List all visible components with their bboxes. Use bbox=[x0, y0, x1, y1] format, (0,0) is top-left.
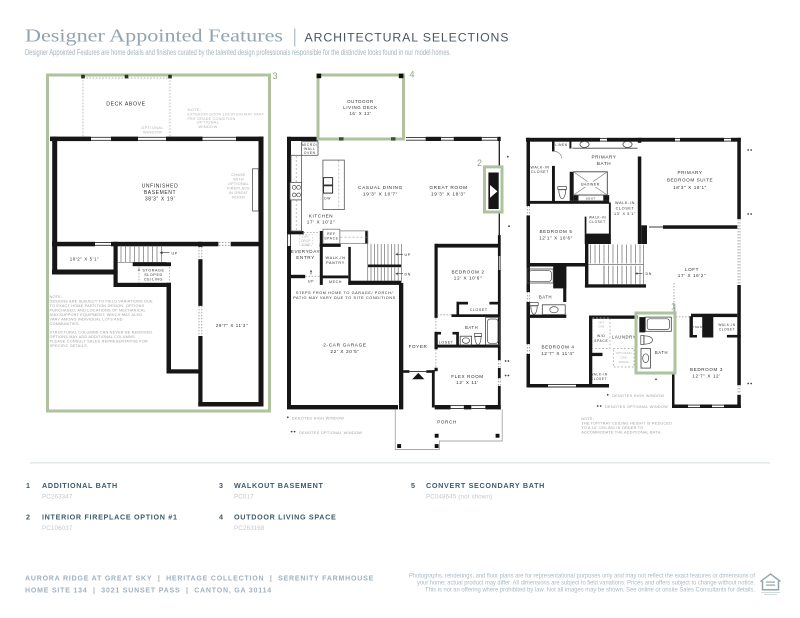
svg-text:LINEN: LINEN bbox=[691, 325, 702, 329]
svg-text:MECH: MECH bbox=[329, 280, 342, 284]
svg-text:12' X 11': 12' X 11' bbox=[456, 380, 479, 385]
svg-text:LOFT: LOFT bbox=[685, 267, 699, 272]
svg-text:UNFINISHED: UNFINISHED bbox=[142, 184, 179, 190]
svg-text:NOTE:: NOTE: bbox=[50, 295, 63, 299]
svg-text:PATIO MAY VARY DUE TO SITE CON: PATIO MAY VARY DUE TO SITE CONDITIONS bbox=[293, 296, 396, 300]
svg-text:BATH: BATH bbox=[597, 161, 611, 166]
svg-text:CLOSET: CLOSET bbox=[616, 207, 635, 211]
svg-text:12'1" X 10'6": 12'1" X 10'6" bbox=[539, 235, 573, 240]
svg-text:KITCHEN: KITCHEN bbox=[309, 214, 333, 219]
svg-text:5: 5 bbox=[411, 481, 416, 490]
svg-text:DW: DW bbox=[324, 197, 331, 201]
svg-text:STORAGE: STORAGE bbox=[142, 269, 164, 273]
svg-text:SPACE: SPACE bbox=[324, 237, 338, 241]
svg-text:UP: UP bbox=[405, 253, 411, 257]
svg-text:DENOTES HIGH WINDOW: DENOTES HIGH WINDOW bbox=[292, 416, 344, 420]
svg-text:SLOPED: SLOPED bbox=[144, 273, 163, 277]
svg-text:TO A 10' CEILING IN ORDER TO: TO A 10' CEILING IN ORDER TO bbox=[581, 426, 643, 430]
svg-text:2: 2 bbox=[477, 158, 482, 168]
svg-text:your home; actual product may: your home; actual product may differ. Al… bbox=[417, 580, 755, 587]
svg-text:EVERYDAY: EVERYDAY bbox=[291, 249, 320, 254]
svg-text:1: 1 bbox=[26, 481, 31, 490]
svg-text:CAB: CAB bbox=[621, 356, 627, 360]
svg-text:SPECIFIC DETAILS.: SPECIFIC DETAILS. bbox=[50, 344, 89, 348]
svg-text:FIREPLACE: FIREPLACE bbox=[227, 187, 250, 191]
svg-text:LIVING DECK: LIVING DECK bbox=[343, 105, 377, 110]
svg-text:BATH: BATH bbox=[655, 350, 668, 355]
svg-text:CEILING: CEILING bbox=[144, 278, 163, 282]
svg-text:OUTDOOR LIVING SPACE: OUTDOOR LIVING SPACE bbox=[234, 513, 337, 522]
svg-text:Photographs, renderings, and f: Photographs, renderings, and floor plans… bbox=[409, 573, 755, 580]
svg-text:GREAT ROOM: GREAT ROOM bbox=[429, 185, 467, 191]
svg-text:OPT DESK/: OPT DESK/ bbox=[616, 351, 632, 355]
svg-text:VARY AMONG INDIVIDUAL LOTS AND: VARY AMONG INDIVIDUAL LOTS AND bbox=[50, 318, 123, 322]
svg-text:BATH: BATH bbox=[539, 294, 552, 299]
svg-text:CLOSET: CLOSET bbox=[436, 340, 454, 344]
svg-text:LAUNDRY: LAUNDRY bbox=[612, 335, 636, 340]
svg-text:12'7" X 11'4": 12'7" X 11'4" bbox=[541, 351, 574, 356]
svg-text:BEDROOM SUITE: BEDROOM SUITE bbox=[667, 178, 713, 183]
svg-text:SPACE: SPACE bbox=[594, 339, 608, 343]
svg-text:WITH: WITH bbox=[233, 178, 244, 182]
svg-text:BATH: BATH bbox=[465, 325, 478, 330]
svg-text:OPTIONS MAY ADD ADDITIONAL COL: OPTIONS MAY ADD ADDITIONAL COLUMNS. bbox=[50, 335, 136, 339]
svg-text:THE TOP/TRAY CEILING HEIGHT IS: THE TOP/TRAY CEILING HEIGHT IS REDUCED bbox=[581, 422, 672, 426]
svg-text:2-CAR GARAGE: 2-CAR GARAGE bbox=[323, 343, 366, 349]
svg-text:OUTDOOR: OUTDOOR bbox=[347, 99, 374, 104]
svg-text:22' X 20'5": 22' X 20'5" bbox=[330, 349, 359, 355]
svg-text:17' X 10'2": 17' X 10'2" bbox=[307, 219, 335, 224]
svg-text:DENOTES OPTIONAL WINDOW: DENOTES OPTIONAL WINDOW bbox=[299, 431, 362, 435]
svg-text:ADDITIONAL BATH: ADDITIONAL BATH bbox=[42, 481, 118, 490]
svg-text:ARCHITECTURAL SELECTIONS: ARCHITECTURAL SELECTIONS bbox=[305, 31, 509, 45]
svg-text:OPTIONAL: OPTIONAL bbox=[228, 182, 249, 186]
svg-text:STEPS FROM HOME TO GARAGE/ POR: STEPS FROM HOME TO GARAGE/ PORCH/ bbox=[296, 291, 394, 295]
svg-text:CLOSET: CLOSET bbox=[531, 170, 549, 174]
svg-text:CLOSET: CLOSET bbox=[470, 308, 488, 312]
svg-text:12' X 10'6": 12' X 10'6" bbox=[454, 276, 482, 281]
svg-text:UP: UP bbox=[172, 251, 178, 255]
svg-text:BEDROOM 3: BEDROOM 3 bbox=[690, 367, 723, 372]
svg-text:PC048645 (not shown): PC048645 (not shown) bbox=[426, 494, 492, 501]
svg-text:WALK-IN: WALK-IN bbox=[590, 373, 607, 377]
svg-text:ROOM: ROOM bbox=[232, 196, 245, 200]
svg-text:PRIMARY: PRIMARY bbox=[677, 170, 702, 175]
svg-text:PC263168: PC263168 bbox=[234, 525, 265, 532]
svg-text:BEDROOM 4: BEDROOM 4 bbox=[542, 345, 575, 350]
svg-text:19'3" X 10'7": 19'3" X 10'7" bbox=[363, 192, 398, 198]
svg-text:PC263347: PC263347 bbox=[42, 494, 73, 501]
svg-text:ACCOMMODATE THE ADDITIONAL BAT: ACCOMMODATE THE ADDITIONAL BATH. bbox=[581, 431, 662, 435]
svg-text:12'7" X 12': 12'7" X 12' bbox=[692, 373, 720, 378]
svg-text:3: 3 bbox=[273, 71, 278, 81]
svg-text:PC017: PC017 bbox=[234, 494, 254, 501]
svg-text:SEAT: SEAT bbox=[586, 197, 596, 201]
svg-text:INTERIOR FIREPLACE OPTION #1: INTERIOR FIREPLACE OPTION #1 bbox=[42, 513, 178, 522]
svg-text:PORCH: PORCH bbox=[437, 420, 457, 425]
svg-text:19'3" X 18'3": 19'3" X 18'3" bbox=[431, 192, 466, 198]
svg-text:Designer Appointed Features: Designer Appointed Features bbox=[25, 25, 283, 45]
svg-text:DN: DN bbox=[646, 272, 652, 276]
svg-text:COMMUNITIES.: COMMUNITIES. bbox=[50, 322, 80, 326]
svg-text:PURCHASED, AND LOCATIONS OF ME: PURCHASED, AND LOCATIONS OF MECHANICAL bbox=[50, 309, 146, 313]
svg-text:SHOWER: SHOWER bbox=[581, 183, 600, 187]
svg-text:HOME SITE 134 | 3021 SUNSET: HOME SITE 134 | 3021 SUNSET PASS | CANTO… bbox=[25, 588, 272, 595]
svg-text:UP: UP bbox=[308, 279, 314, 283]
svg-text:WALK-IN: WALK-IN bbox=[326, 256, 346, 260]
svg-text:ENTRY: ENTRY bbox=[296, 255, 315, 260]
svg-text:PRIMARY: PRIMARY bbox=[591, 155, 616, 160]
svg-text:ZONE: ZONE bbox=[301, 243, 310, 247]
svg-text:This is not an offering where: This is not an offering where prohibited… bbox=[425, 587, 755, 594]
svg-text:LINEN: LINEN bbox=[555, 143, 567, 147]
svg-text:TO EXACT HOME PARTITION DESIGN: TO EXACT HOME PARTITION DESIGN, OPTIONS bbox=[50, 304, 145, 308]
svg-text:2: 2 bbox=[26, 513, 31, 522]
svg-text:WINDOW: WINDOW bbox=[198, 124, 217, 129]
svg-text:3: 3 bbox=[219, 481, 224, 490]
svg-text:4: 4 bbox=[410, 70, 415, 80]
svg-text:38'3" X 19': 38'3" X 19' bbox=[145, 197, 175, 203]
svg-text:BEDROOM 2: BEDROOM 2 bbox=[452, 269, 485, 274]
svg-text:AURORA RIDGE AT GREAT SKY |: AURORA RIDGE AT GREAT SKY | HERITAGE COL… bbox=[25, 576, 374, 583]
svg-text:CASUAL DINING: CASUAL DINING bbox=[358, 185, 403, 191]
svg-text:WALKOUT BASEMENT: WALKOUT BASEMENT bbox=[234, 481, 324, 490]
svg-text:IN GREAT: IN GREAT bbox=[229, 191, 249, 195]
svg-text:DENOTES HIGH WINDOW: DENOTES HIGH WINDOW bbox=[612, 394, 664, 398]
svg-text:Designer Appointed Features ar: Designer Appointed Features are home det… bbox=[25, 47, 451, 57]
svg-text:17' X 16'2": 17' X 16'2" bbox=[678, 273, 706, 278]
svg-text:1: 1 bbox=[671, 302, 676, 312]
svg-text:WINDOW: WINDOW bbox=[143, 130, 162, 135]
svg-text:FLEX ROOM: FLEX ROOM bbox=[451, 374, 483, 379]
svg-text:4: 4 bbox=[219, 513, 224, 522]
svg-text:DESIGNS ARE SUBJECT TO FIELD V: DESIGNS ARE SUBJECT TO FIELD VARIATIONS … bbox=[50, 300, 153, 304]
svg-text:PLEASE CONSULT SALES REPRESENT: PLEASE CONSULT SALES REPRESENTATIVE FOR bbox=[50, 340, 149, 344]
svg-text:CAB: CAB bbox=[598, 325, 604, 329]
svg-text:10'2" X 5'1": 10'2" X 5'1" bbox=[70, 257, 100, 262]
svg-text:CONVERT SECONDARY BATH: CONVERT SECONDARY BATH bbox=[426, 481, 545, 490]
svg-text:PANTRY: PANTRY bbox=[326, 261, 345, 265]
svg-text:SPACE: SPACE bbox=[619, 360, 629, 364]
svg-text:WALK-IN: WALK-IN bbox=[530, 166, 549, 170]
svg-text:29'7" X 11'3": 29'7" X 11'3" bbox=[216, 323, 248, 328]
svg-text:STRUCTURAL COLUMNS CAN NEVER B: STRUCTURAL COLUMNS CAN NEVER BE REMOVED. bbox=[50, 331, 154, 335]
svg-text:DENOTES OPTIONAL WINDOW: DENOTES OPTIONAL WINDOW bbox=[605, 405, 668, 409]
svg-text:AND SUPPORT EQUIPMENT, WHICH M: AND SUPPORT EQUIPMENT, WHICH MAY ALSO bbox=[50, 313, 143, 317]
svg-text:WALK-IN: WALK-IN bbox=[615, 201, 635, 205]
svg-text:CLOSET: CLOSET bbox=[591, 377, 607, 381]
svg-text:16' X 12': 16' X 12' bbox=[349, 111, 371, 116]
svg-text:WALK-IN: WALK-IN bbox=[718, 323, 735, 327]
svg-text:CLOSET: CLOSET bbox=[719, 327, 735, 331]
svg-text:NOTE:: NOTE: bbox=[581, 417, 594, 421]
svg-text:PC106037: PC106037 bbox=[42, 525, 73, 532]
svg-text:REF: REF bbox=[327, 232, 336, 236]
svg-text:W/D: W/D bbox=[597, 334, 605, 338]
svg-text:BASEMENT: BASEMENT bbox=[144, 190, 176, 196]
svg-text:13' X 5'1": 13' X 5'1" bbox=[614, 212, 636, 216]
svg-text:OVEN: OVEN bbox=[304, 151, 316, 155]
svg-text:18'3" X 16'1": 18'3" X 16'1" bbox=[673, 185, 707, 190]
svg-text:CHASE: CHASE bbox=[231, 173, 245, 177]
svg-text:FOYER: FOYER bbox=[409, 344, 428, 349]
svg-text:DN: DN bbox=[405, 272, 411, 276]
svg-text:CLOSET: CLOSET bbox=[589, 220, 605, 224]
svg-text:DECK ABOVE: DECK ABOVE bbox=[106, 102, 145, 108]
svg-text:BEDROOM 5: BEDROOM 5 bbox=[540, 229, 573, 234]
svg-text:WALK-IN: WALK-IN bbox=[589, 215, 606, 219]
